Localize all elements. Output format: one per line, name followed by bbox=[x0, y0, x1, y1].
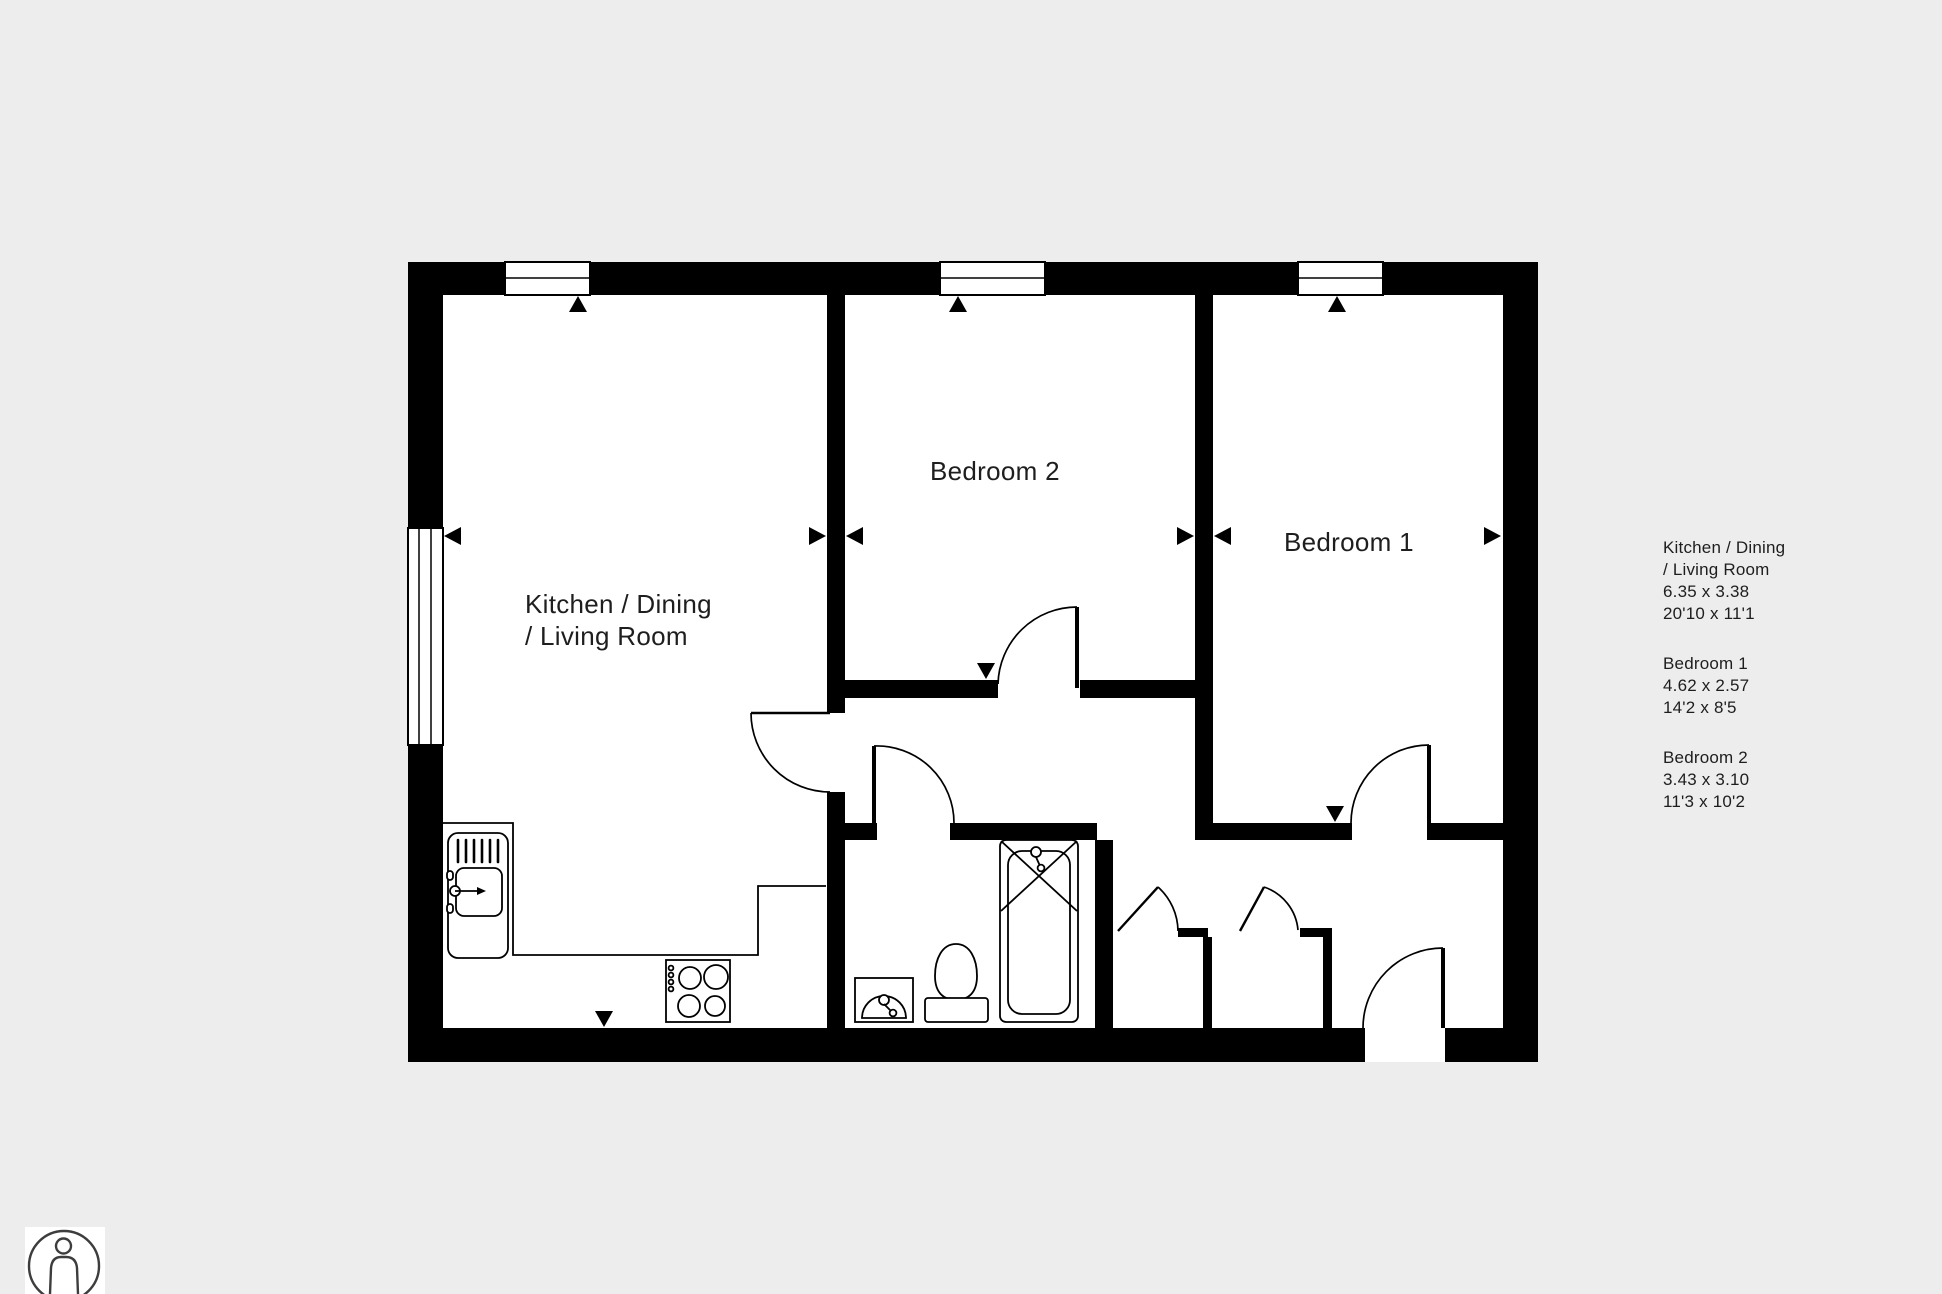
floorplan-page: Kitchen / Dining / Living Room Bedroom 2… bbox=[0, 0, 1942, 1294]
window-kitchen bbox=[505, 262, 590, 295]
legend-imperial-size: 11'3 x 10'2 bbox=[1663, 791, 1785, 813]
legend-room-name: Bedroom 1 bbox=[1663, 653, 1785, 675]
legend-room-name: Bedroom 2 bbox=[1663, 747, 1785, 769]
legend-entry-kitchen: Kitchen / Dining / Living Room 6.35 x 3.… bbox=[1663, 537, 1785, 625]
bedroom-1-label: Bedroom 1 bbox=[1284, 527, 1414, 557]
floor-area bbox=[408, 262, 1538, 1062]
legend-room-name: Kitchen / Dining bbox=[1663, 537, 1785, 559]
kitchen-sink-icon bbox=[447, 833, 508, 958]
legend-entry-bedroom-1: Bedroom 1 4.62 x 2.57 14'2 x 8'5 bbox=[1663, 653, 1785, 719]
window-bedroom-2 bbox=[940, 262, 1045, 295]
dimensions-legend: Kitchen / Dining / Living Room 6.35 x 3.… bbox=[1663, 537, 1785, 841]
window-bedroom-1 bbox=[1298, 262, 1383, 295]
bedroom-2-label: Bedroom 2 bbox=[930, 456, 1060, 486]
legend-entry-bedroom-2: Bedroom 2 3.43 x 3.10 11'3 x 10'2 bbox=[1663, 747, 1785, 813]
legend-metric-size: 6.35 x 3.38 bbox=[1663, 581, 1785, 603]
window-kitchen-side bbox=[408, 528, 443, 745]
kitchen-label-line1: Kitchen / Dining bbox=[525, 589, 712, 619]
washbasin-icon bbox=[855, 978, 913, 1022]
legend-room-name-line2: / Living Room bbox=[1663, 559, 1785, 581]
legend-imperial-size: 20'10 x 11'1 bbox=[1663, 603, 1785, 625]
hob-icon bbox=[666, 960, 730, 1022]
scale-person-icon bbox=[25, 1227, 105, 1294]
legend-imperial-size: 14'2 x 8'5 bbox=[1663, 697, 1785, 719]
kitchen-label-line2: / Living Room bbox=[525, 621, 688, 651]
floor-plan: Kitchen / Dining / Living Room Bedroom 2… bbox=[0, 0, 1942, 1294]
bathtub-icon bbox=[1000, 840, 1078, 1022]
legend-metric-size: 4.62 x 2.57 bbox=[1663, 675, 1785, 697]
legend-metric-size: 3.43 x 3.10 bbox=[1663, 769, 1785, 791]
